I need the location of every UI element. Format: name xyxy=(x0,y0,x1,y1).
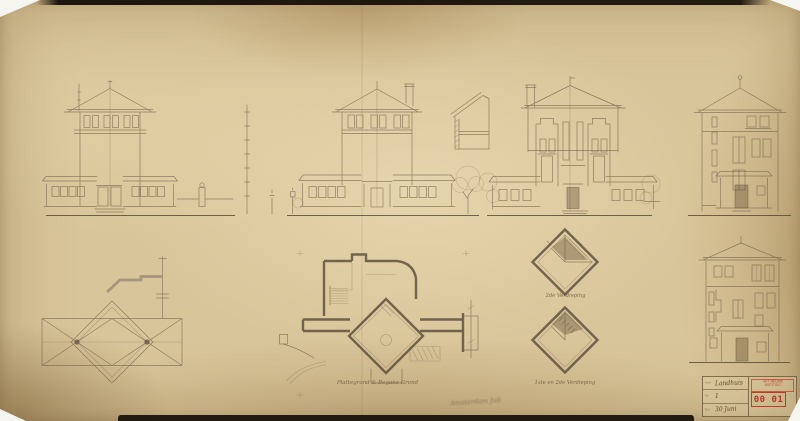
roof-section-detail xyxy=(451,93,489,150)
archive-stamp-text: HET NIEUWE INSTITUUT xyxy=(752,380,793,387)
caption-upper-floor-plan: 2de Verdieping xyxy=(528,293,603,299)
caption-middle-floors-plan: 1ste en 2de Verdieping xyxy=(522,380,608,386)
scan-edge-top xyxy=(36,0,770,5)
drawing-linework xyxy=(0,0,800,421)
elevation-front-windows xyxy=(52,116,205,207)
tree-sketch xyxy=(453,166,484,214)
archive-stamp: HET NIEUWE INSTITUUT xyxy=(751,379,794,392)
middle-floors-plan xyxy=(533,308,598,373)
rear-elevation xyxy=(699,237,786,362)
elevation-side-street xyxy=(291,81,456,214)
ground-floor-plan xyxy=(280,251,479,399)
title-block-row: Dat 30 Juni xyxy=(703,404,748,416)
title-block-row: No 1 xyxy=(703,390,748,403)
inventory-number: 00 01 xyxy=(751,392,786,407)
field-value: 30 Juni xyxy=(715,406,737,414)
upper-floor-plan xyxy=(533,230,598,295)
scanned-architectural-sheet: Plattegrond & Begane Grond 2de Verdiepin… xyxy=(0,0,800,421)
title-block-row: Arch Landhuis xyxy=(703,377,748,390)
roof-plan xyxy=(42,257,182,384)
field-label: Arch xyxy=(705,382,710,385)
elevation-tower-side xyxy=(694,76,786,211)
field-value: 1 xyxy=(715,393,719,400)
field-label: Dat xyxy=(705,408,710,411)
elevation-front xyxy=(43,81,234,213)
measuring-rod xyxy=(245,105,275,214)
title-block: Arch Landhuis No 1 Dat 30 Juni HET NIEUW… xyxy=(702,376,797,417)
rear-elevation-windows xyxy=(709,265,775,361)
archive-stamp-area: HET NIEUWE INSTITUUT 00 01 xyxy=(749,377,796,416)
field-label: No xyxy=(705,395,710,398)
elevation-side-windows xyxy=(291,115,437,207)
scan-edge-bottom xyxy=(118,415,694,421)
caption-ground-floor-plan: Plattegrond & Begane Grond xyxy=(330,380,425,386)
field-value: Landhuis xyxy=(715,379,743,387)
title-block-fields: Arch Landhuis No 1 Dat 30 Juni xyxy=(703,377,749,416)
elevation-entrance xyxy=(479,77,660,214)
